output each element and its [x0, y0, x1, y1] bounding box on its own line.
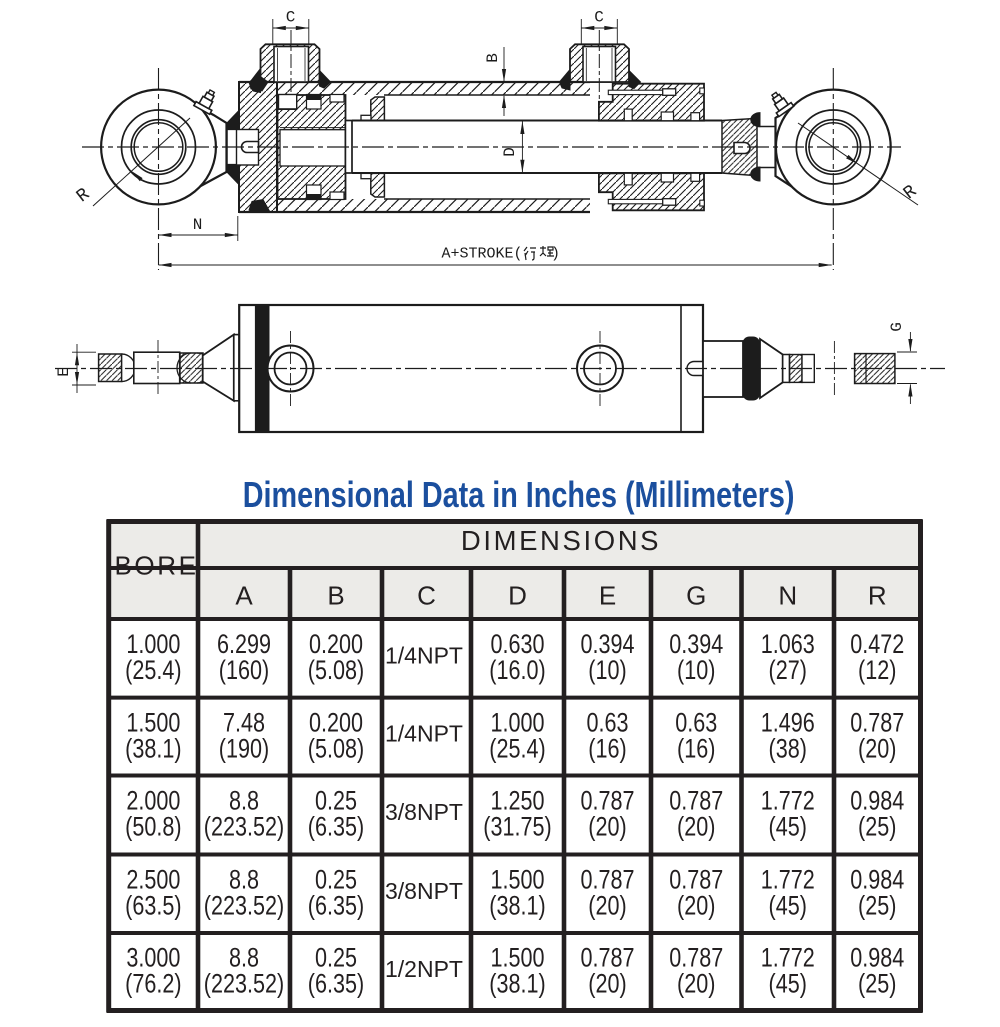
svg-text:N: N: [778, 581, 797, 611]
svg-text:(25): (25): [858, 891, 896, 921]
svg-text:(45): (45): [769, 891, 807, 921]
svg-text:(16.0): (16.0): [489, 656, 545, 686]
svg-text:(38.1): (38.1): [489, 891, 545, 921]
svg-text:3/8NPT: 3/8NPT: [385, 878, 463, 904]
svg-text:1/2NPT: 1/2NPT: [385, 956, 463, 982]
svg-text:C: C: [417, 581, 436, 611]
svg-text:(160): (160): [219, 656, 269, 686]
svg-text:(38.1): (38.1): [489, 969, 545, 999]
svg-text:(38.1): (38.1): [125, 734, 181, 764]
svg-text:BORE: BORE: [114, 551, 198, 581]
svg-text:(6.35): (6.35): [308, 813, 364, 843]
svg-text:(223.52): (223.52): [204, 969, 284, 999]
svg-text:(20): (20): [677, 891, 715, 921]
svg-text:(6.35): (6.35): [308, 969, 364, 999]
svg-text:(31.75): (31.75): [483, 813, 551, 843]
svg-text:): ): [551, 246, 560, 263]
svg-text:(20): (20): [858, 734, 896, 764]
svg-text:3/8NPT: 3/8NPT: [385, 799, 463, 825]
svg-text:(20): (20): [677, 969, 715, 999]
svg-text:(20): (20): [677, 813, 715, 843]
svg-text:E: E: [599, 581, 616, 611]
svg-text:(45): (45): [769, 813, 807, 843]
svg-text:C: C: [594, 9, 604, 27]
svg-text:(10): (10): [588, 656, 626, 686]
svg-text:A: A: [235, 581, 253, 611]
svg-text:(12): (12): [858, 656, 896, 686]
svg-text:(25.4): (25.4): [489, 734, 545, 764]
svg-text:D: D: [501, 147, 519, 157]
svg-text:(20): (20): [588, 969, 626, 999]
svg-text:1/4NPT: 1/4NPT: [385, 642, 463, 668]
svg-text:(223.52): (223.52): [204, 813, 284, 843]
svg-text:A+STROKE(: A+STROKE(: [442, 246, 523, 263]
svg-text:(10): (10): [677, 656, 715, 686]
svg-text:D: D: [508, 581, 527, 611]
svg-text:(25): (25): [858, 813, 896, 843]
svg-text:B: B: [484, 53, 502, 63]
svg-text:B: B: [327, 581, 344, 611]
svg-text:G: G: [888, 322, 906, 332]
svg-text:(27): (27): [769, 656, 807, 686]
svg-text:(5.08): (5.08): [308, 734, 364, 764]
svg-text:(25): (25): [858, 969, 896, 999]
svg-text:DIMENSIONS: DIMENSIONS: [461, 525, 661, 556]
svg-text:(63.5): (63.5): [125, 891, 181, 921]
svg-text:(190): (190): [219, 734, 269, 764]
svg-text:(223.52): (223.52): [204, 891, 284, 921]
svg-text:R: R: [868, 581, 887, 611]
svg-text:(6.35): (6.35): [308, 891, 364, 921]
svg-text:(20): (20): [588, 891, 626, 921]
svg-text:(5.08): (5.08): [308, 656, 364, 686]
svg-text:(50.8): (50.8): [125, 813, 181, 843]
svg-text:(25.4): (25.4): [125, 656, 181, 686]
svg-text:N: N: [193, 216, 203, 234]
svg-text:Dimensional Data in Inches (Mi: Dimensional Data in Inches (Millimeters): [243, 474, 795, 515]
svg-text:G: G: [686, 581, 706, 611]
svg-text:(76.2): (76.2): [125, 969, 181, 999]
svg-text:(45): (45): [769, 969, 807, 999]
svg-text:(16): (16): [588, 734, 626, 764]
svg-text:(20): (20): [588, 813, 626, 843]
svg-text:(16): (16): [677, 734, 715, 764]
svg-text:C: C: [286, 9, 296, 27]
svg-text:(38): (38): [769, 734, 807, 764]
svg-text:1/4NPT: 1/4NPT: [385, 721, 463, 747]
